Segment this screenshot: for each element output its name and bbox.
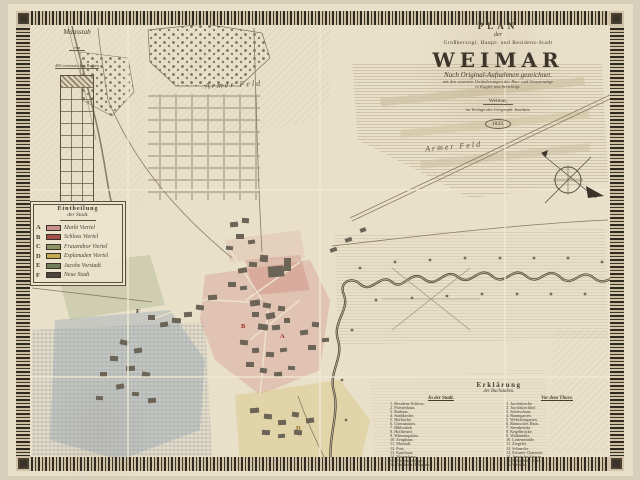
quarters-legend-subtitle: der Stadt. (34, 212, 122, 218)
quarter-letter-a: A (280, 333, 285, 340)
border-corner-tl (16, 11, 31, 26)
legend-swatch (46, 244, 61, 250)
border-right (610, 26, 624, 457)
legend-row: E Jacobs Vorstadt (36, 262, 120, 269)
border-left (16, 26, 30, 457)
title-dedication: Großherzogl. Haupt- und Residenz-Stadt (398, 40, 598, 46)
legend-row: C Frauenthor Viertel (36, 243, 120, 250)
border-corner-bl (16, 456, 31, 471)
legend-divider (60, 220, 96, 221)
legend-letter: B (36, 234, 43, 241)
border-corner-br (609, 456, 624, 471)
scale-von: von (69, 45, 86, 51)
quarter-letter-b: B (241, 323, 245, 330)
legend-swatch (46, 253, 61, 259)
title-cartouche: PLAN der Großherzogl. Haupt- und Residen… (398, 22, 598, 130)
legend-entry: 16. Webicht. (506, 463, 608, 467)
map-page: PLAN der Großherzogl. Haupt- und Residen… (0, 0, 640, 480)
quarter-letter-f: F (136, 308, 140, 315)
legend-column-city: In der Stadt. 1. Residenz-Schloss.2. Für… (390, 396, 492, 467)
scale-bar: Maasstab von 400 weimarischen Ruthen (42, 28, 112, 209)
legend-label: Jacobs Vorstadt (64, 263, 101, 269)
quarter-letter-d: D (296, 425, 301, 432)
legend-swatch (46, 272, 61, 278)
letters-legend-subtitle: der Buchstaben. (390, 389, 608, 394)
legend-swatch (46, 225, 61, 231)
publication-year: 1833. (485, 119, 511, 129)
legend-label: Esplanaden Viertel (64, 253, 108, 259)
scale-ruler (60, 75, 94, 209)
legend-row: D Esplanaden Viertel (36, 253, 120, 260)
scale-title: Maasstab (42, 28, 112, 36)
legend-label: Schloss Viertel (64, 234, 98, 240)
title-plan: PLAN (398, 22, 598, 32)
legend-letter: A (36, 224, 43, 231)
letters-legend: Erklärung der Buchstaben. In der Stadt. … (390, 381, 608, 467)
legend-label: Markt Viertel (64, 225, 95, 231)
legend-swatch (46, 234, 61, 240)
publisher-city: Weimar, (483, 98, 513, 105)
quarters-legend: Eintheilung der Stadt. A Markt Viertel B… (30, 201, 126, 286)
letters-legend-title: Erklärung (390, 381, 608, 389)
legend-entry: 16. Gasthof z. Erbprinz. (390, 463, 492, 467)
legend-letter: C (36, 243, 43, 250)
legend-column-gates: Vor dem Thore. 1. Jacobskirche.2. Jacobs… (506, 396, 608, 467)
legend-letter: F (36, 272, 43, 279)
legend-letter: D (36, 253, 43, 260)
legend-swatch (46, 263, 61, 269)
title-line1: Nach Original-Aufnahmen gezeichnet. (398, 72, 598, 80)
legend-entries: 1. Residenz-Schloss.2. Fürstenhaus.3. Ra… (390, 402, 492, 467)
border-corner-tr (609, 11, 624, 26)
scale-ruler-cap (61, 76, 93, 87)
legend-label: Frauenthor Viertel (64, 244, 108, 250)
legend-row: F Neue Stadt (36, 272, 120, 279)
title-city: WEIMAR (398, 49, 598, 71)
legend-label: Neue Stadt (64, 272, 89, 278)
title-der: der (398, 32, 598, 39)
scale-unit: 400 weimarischen Ruthen (55, 63, 99, 69)
legend-entries: 1. Jacobskirche.2. Jacobskirchhof.3. Sch… (506, 402, 608, 467)
legend-letter: E (36, 262, 43, 269)
legend-row: A Markt Viertel (36, 224, 120, 231)
legend-row: B Schloss Viertel (36, 234, 120, 241)
